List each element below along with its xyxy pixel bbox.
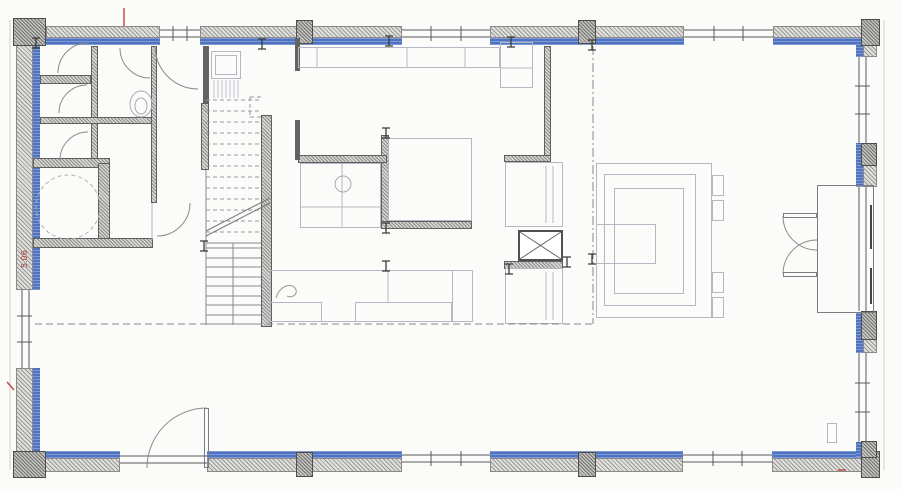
insulation-strip	[33, 368, 40, 452]
interior-wall	[33, 238, 153, 248]
floor-plan: 5.06	[0, 0, 901, 489]
wall-pier	[861, 441, 877, 458]
door-arc	[783, 216, 817, 250]
door-arc	[157, 203, 190, 236]
closet-outline	[204, 408, 209, 468]
interior-wall	[504, 155, 551, 162]
outer-wall-segment	[46, 26, 160, 38]
insulation-strip	[773, 38, 862, 45]
furniture-outline	[388, 138, 472, 221]
interior-wall	[40, 75, 91, 84]
insulation-strip	[46, 38, 160, 45]
furniture-outline	[712, 272, 724, 293]
wall-pier	[578, 20, 596, 44]
furniture-outline	[500, 42, 533, 88]
door-arc	[147, 408, 207, 468]
column-marker-icon	[200, 241, 208, 251]
wall-pier	[13, 451, 46, 478]
insulation-strip	[45, 451, 120, 458]
column-marker-icon	[588, 254, 596, 264]
outer-wall-segment	[772, 458, 862, 472]
outer-wall-segment	[45, 458, 120, 472]
door-arc	[59, 85, 87, 113]
interior-wall	[151, 46, 157, 203]
interior-wall	[381, 221, 472, 229]
wall-pier	[861, 19, 880, 46]
interior-wall	[544, 46, 551, 158]
furniture-outline	[712, 297, 724, 318]
furniture-outline	[712, 175, 724, 196]
wall-pier	[578, 452, 596, 477]
insulation-strip	[772, 451, 862, 458]
furniture-outline	[270, 302, 322, 322]
furniture-outline	[596, 224, 656, 264]
furniture-outline	[827, 423, 837, 443]
interior-wall	[201, 103, 209, 170]
partition-wall	[295, 120, 300, 160]
wall-pier	[861, 143, 877, 166]
chimney-flue	[518, 230, 563, 261]
furniture-outline	[712, 200, 724, 221]
outer-wall-segment	[16, 45, 33, 290]
closet-outline	[817, 185, 874, 313]
door-arc	[60, 132, 88, 160]
interior-wall	[40, 117, 157, 124]
furniture-outline	[298, 47, 500, 68]
door-arc	[155, 46, 198, 89]
furniture-outline	[452, 270, 473, 322]
wall-pier	[861, 311, 877, 340]
furniture-outline	[215, 55, 237, 75]
wall-pier	[13, 18, 46, 46]
door-arc	[58, 43, 88, 73]
furniture-outline	[300, 163, 381, 228]
furniture-outline	[505, 268, 563, 324]
door-arc	[120, 48, 150, 78]
column-marker-icon	[563, 257, 571, 267]
interior-wall	[91, 46, 98, 161]
toilet-bowl	[130, 91, 152, 117]
interior-wall	[98, 163, 110, 248]
closet-outline	[783, 272, 817, 277]
red-dimension-tick	[7, 382, 14, 390]
door-arc	[783, 240, 817, 274]
toilet-bowl-inner	[135, 98, 147, 114]
shower-circle	[36, 175, 100, 239]
furniture-outline	[355, 302, 452, 322]
interior-wall	[298, 155, 387, 163]
partition-wall	[203, 46, 209, 103]
closet-outline	[783, 213, 817, 218]
outer-wall-segment	[773, 26, 863, 38]
outer-wall-segment	[16, 368, 33, 452]
furniture-outline	[505, 162, 563, 227]
wall-pier	[296, 452, 313, 477]
